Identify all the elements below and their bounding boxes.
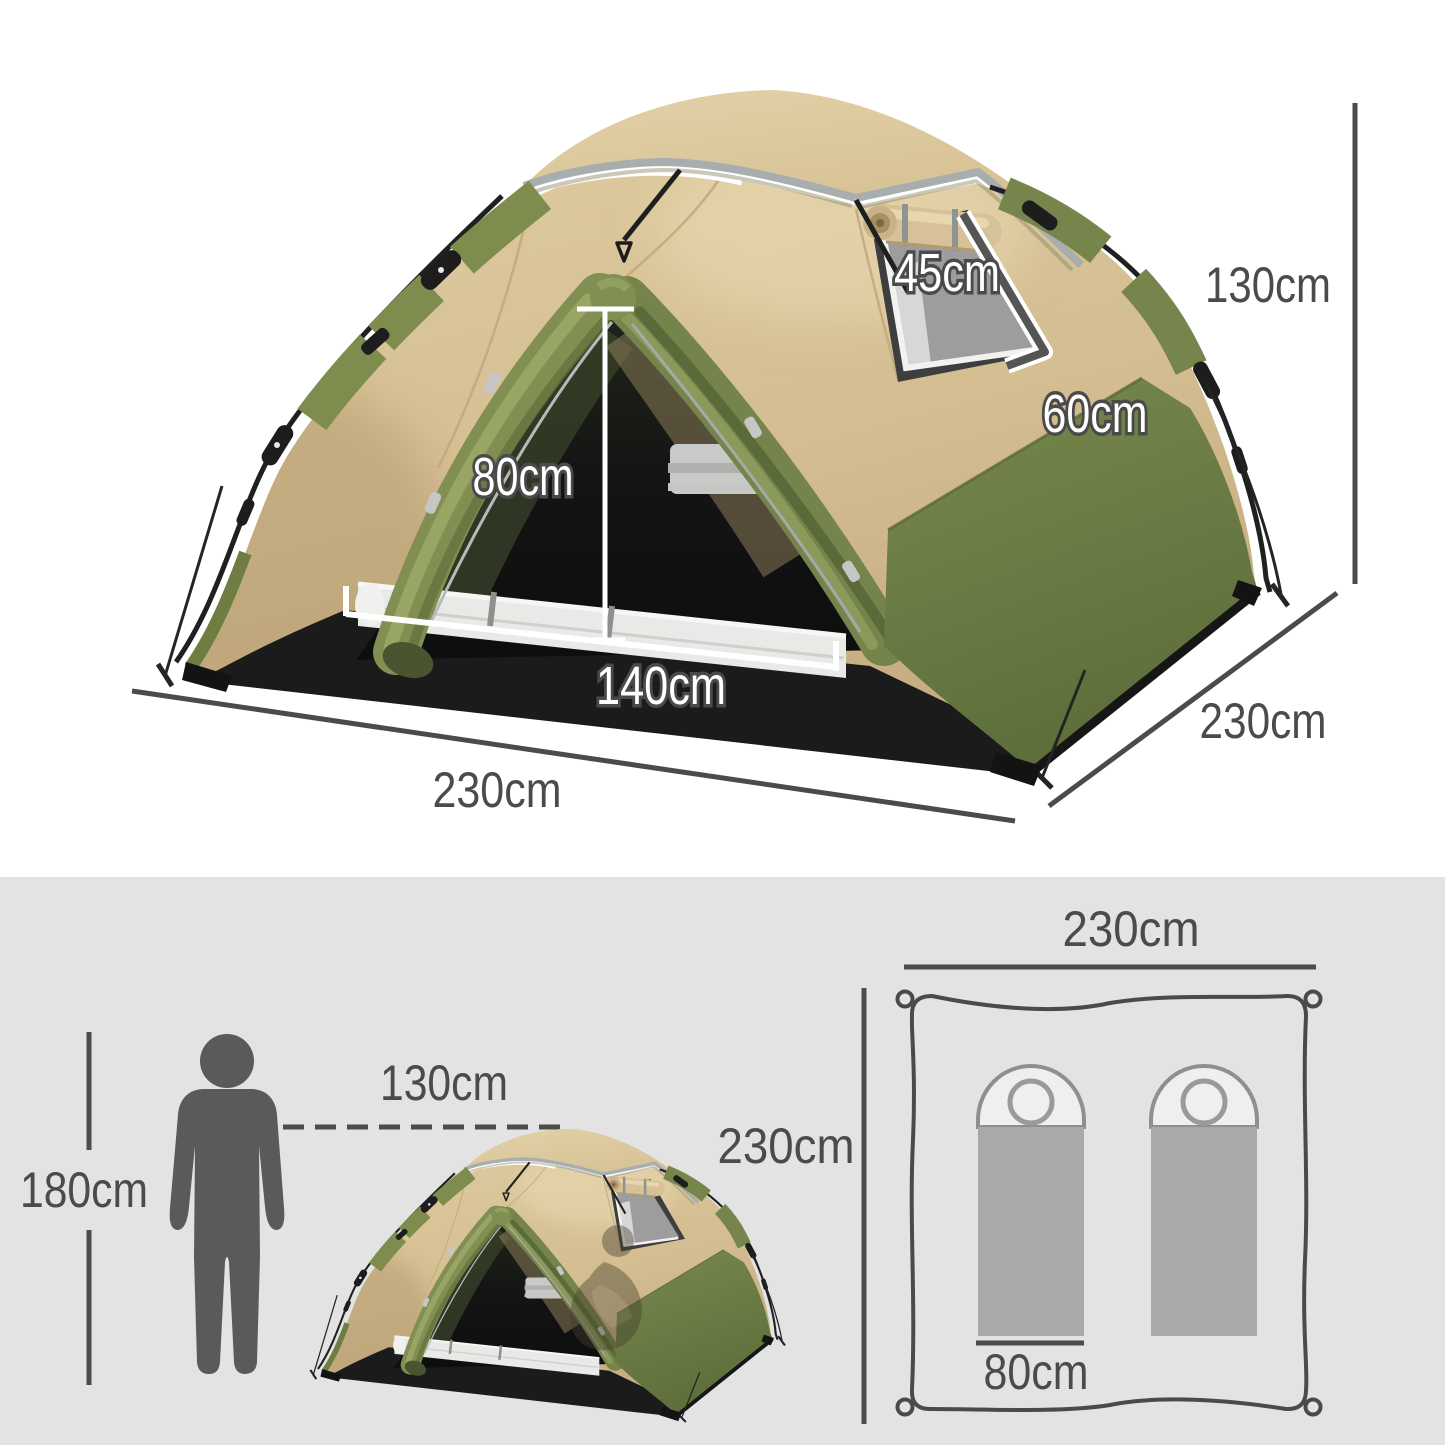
svg-text:130cm: 130cm <box>380 1055 508 1111</box>
svg-text:230cm: 230cm <box>433 762 562 818</box>
svg-text:230cm: 230cm <box>1063 901 1200 957</box>
svg-text:140cm: 140cm <box>596 656 726 716</box>
svg-text:130cm: 130cm <box>1205 257 1331 313</box>
svg-text:230cm: 230cm <box>718 1118 855 1174</box>
svg-text:80cm: 80cm <box>473 447 574 507</box>
svg-text:45cm: 45cm <box>894 243 1000 303</box>
svg-text:80cm: 80cm <box>984 1344 1089 1400</box>
svg-text:230cm: 230cm <box>1200 693 1327 749</box>
svg-text:180cm: 180cm <box>20 1162 148 1218</box>
svg-text:60cm: 60cm <box>1043 384 1148 444</box>
